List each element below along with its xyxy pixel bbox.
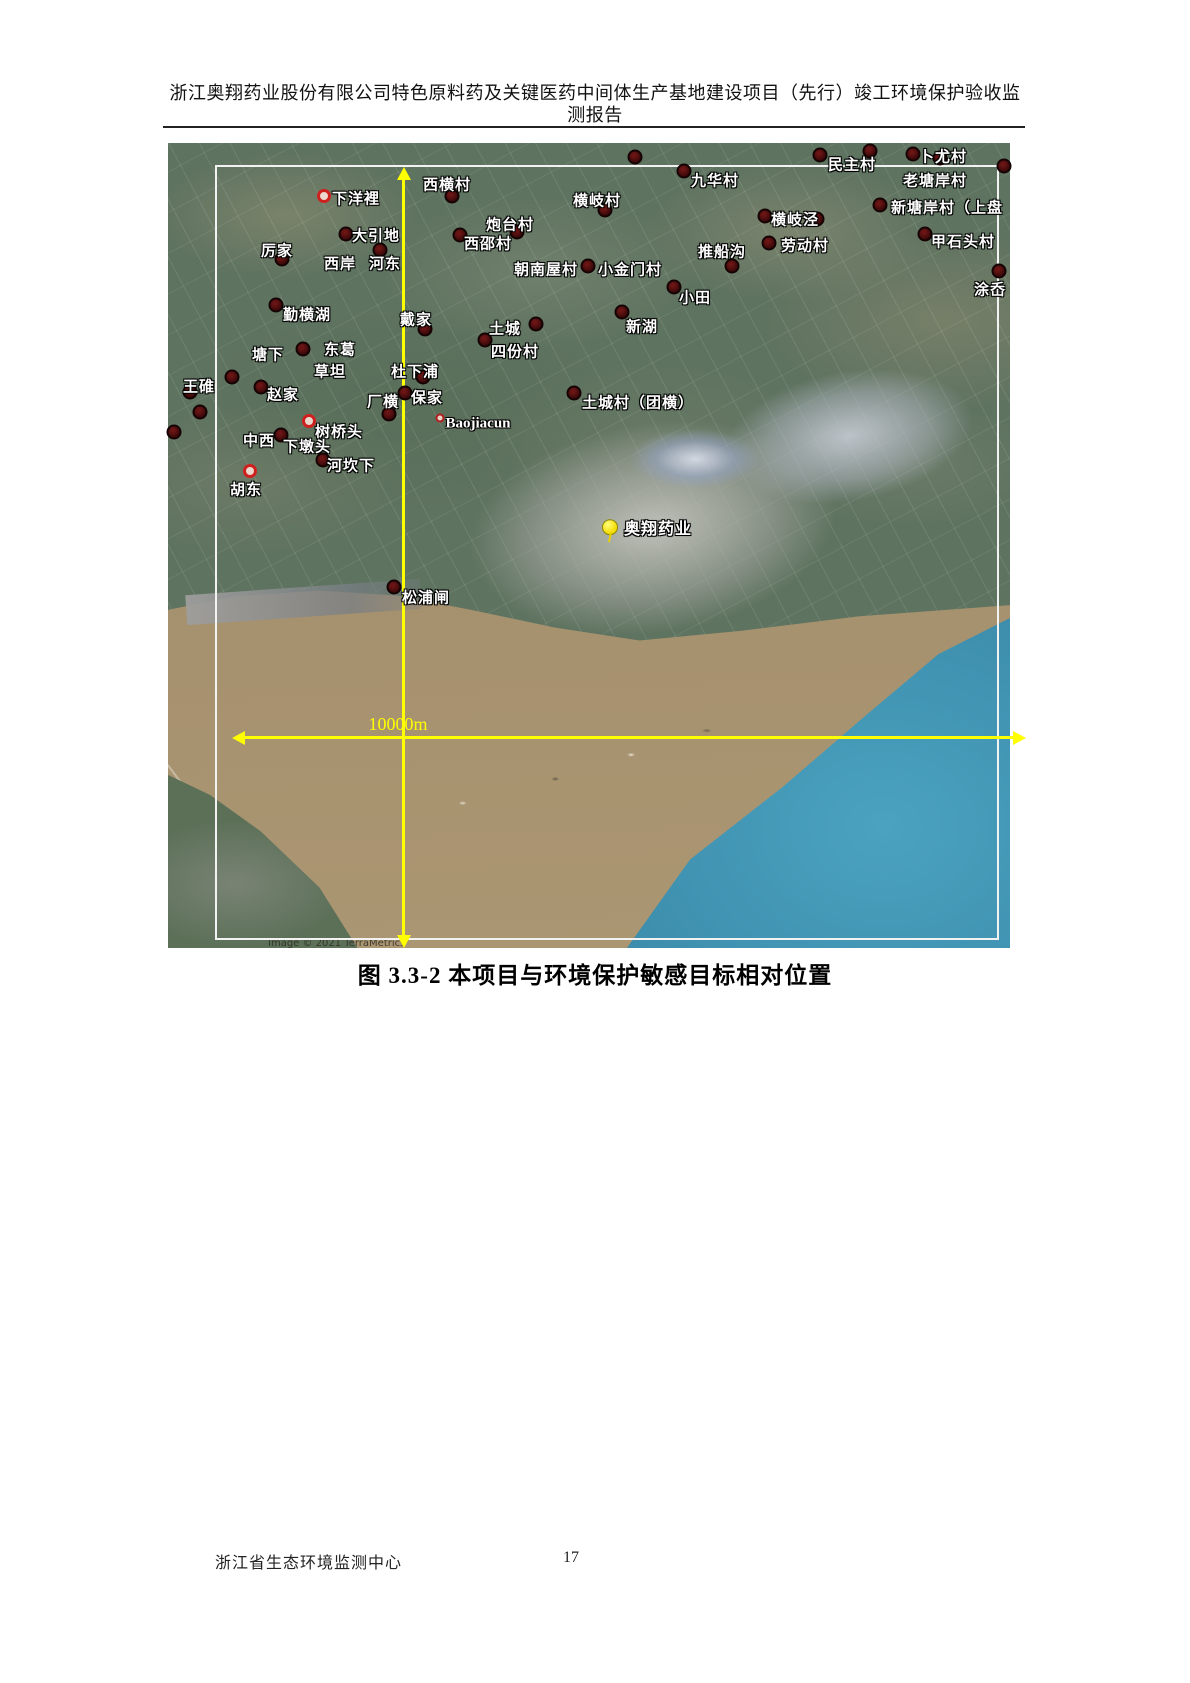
village-label: 炮台村 <box>486 214 534 235</box>
report-header: 浙江奥翔药业股份有限公司特色原料药及关键医药中间体生产基地建设项目（先行）竣工环… <box>100 82 1090 126</box>
report-title-line1: 浙江奥翔药业股份有限公司特色原料药及关键医药中间体生产基地建设项目（先行）竣工环… <box>100 82 1090 104</box>
village-label: 土城 <box>489 318 521 339</box>
village-label: 杜下浦 <box>391 361 439 382</box>
village-label: 塘下 <box>252 344 284 365</box>
header-divider <box>163 126 1025 128</box>
report-title-line2: 测报告 <box>100 104 1090 126</box>
report-page: 浙江奥翔药业股份有限公司特色原料药及关键医药中间体生产基地建设项目（先行）竣工环… <box>0 0 1190 1683</box>
map-labels-layer: 下洋裡西横村厉家大引地西岸河东炮台村西邵村朝南屋村小金门村横岐村九华村推船沟横岐… <box>168 143 1010 948</box>
village-label: 老塘岸村 <box>903 170 967 191</box>
village-label: 新塘岸村（上盘 <box>891 197 1003 218</box>
village-label: 草坦 <box>314 361 346 382</box>
village-label: 新湖 <box>626 316 658 337</box>
arrow-right-icon <box>1013 731 1026 745</box>
village-label: 卜尤村 <box>919 146 967 167</box>
village-label: 西横村 <box>423 174 471 195</box>
village-label: 下洋裡 <box>332 188 380 209</box>
village-label: 厉家 <box>261 240 293 261</box>
village-label: Baojiacun <box>445 416 510 433</box>
village-label: 横岐村 <box>573 190 621 211</box>
village-label: 民主村 <box>828 154 876 175</box>
village-label: 勤横湖 <box>283 304 331 325</box>
village-label: 中西 <box>243 430 275 451</box>
village-label: 保家 <box>411 387 443 408</box>
village-label: 松浦闸 <box>402 587 450 608</box>
village-label: 东葛 <box>324 339 356 360</box>
village-label: 河坎下 <box>327 455 375 476</box>
project-label: 奥翔药业 <box>624 515 692 539</box>
village-label: 九华村 <box>691 170 739 191</box>
village-label: 王碓 <box>183 376 215 397</box>
village-label: 土城村（团横） <box>582 392 694 413</box>
village-label: 河东 <box>369 253 401 274</box>
village-label: 戴家 <box>400 309 432 330</box>
village-label: 推船沟 <box>698 241 746 262</box>
village-label: 四份村 <box>491 341 539 362</box>
village-label: 甲石头村 <box>931 231 995 252</box>
village-label: 小金门村 <box>598 259 662 280</box>
village-label: 朝南屋村 <box>514 259 578 280</box>
village-label: 西岸 <box>324 253 356 274</box>
village-label: 大引地 <box>352 225 400 246</box>
village-label: 厂横 <box>367 391 399 412</box>
page-number: 17 <box>563 1549 579 1567</box>
village-label: 下墩头 <box>283 436 331 457</box>
footer-organization: 浙江省生态环境监测中心 <box>215 1549 402 1573</box>
project-pin-icon <box>602 519 618 535</box>
figure-caption: 图 3.3-2 本项目与环境保护敏感目标相对位置 <box>0 956 1190 990</box>
village-label: 横岐泾 <box>771 209 819 230</box>
figure-map: Image © 2021 TerraMetrics 10000m 下洋裡西横村厉… <box>168 143 1010 948</box>
village-label: 西邵村 <box>464 233 512 254</box>
village-label: 涂岙 <box>974 279 1006 300</box>
village-label: 劳动村 <box>781 235 829 256</box>
village-label: 赵家 <box>267 384 299 405</box>
village-label: 小田 <box>679 287 711 308</box>
village-label: 胡东 <box>230 479 262 500</box>
